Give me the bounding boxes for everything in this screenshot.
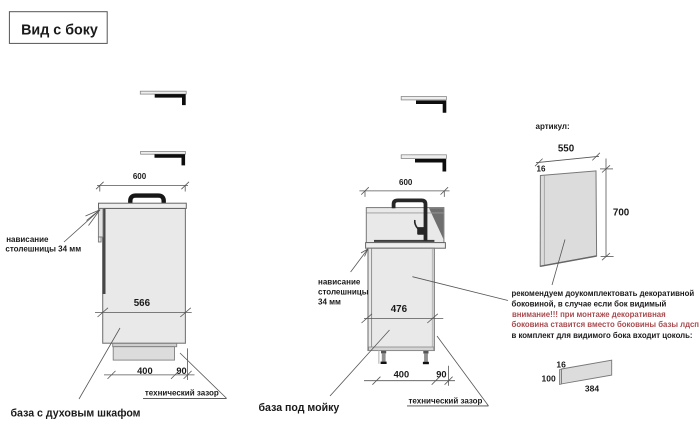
svg-text:база с духовым шкафом: база с духовым шкафом: [11, 408, 141, 420]
svg-text:технический зазор: технический зазор: [145, 389, 219, 398]
svg-text:476: 476: [391, 304, 408, 315]
svg-text:600: 600: [399, 178, 413, 187]
svg-text:рекомендуем доукомплектовать д: рекомендуем доукомплектовать декоративно…: [512, 289, 695, 298]
svg-text:боковина ставится вместо боков: боковина ставится вместо боковины базы л…: [512, 320, 700, 329]
svg-text:100: 100: [542, 373, 556, 383]
svg-text:боковиной, в случае если бок в: боковиной, в случае если бок видимый: [512, 299, 667, 308]
svg-text:384: 384: [585, 384, 599, 394]
svg-text:технический зазор: технический зазор: [409, 397, 483, 406]
svg-text:550: 550: [558, 144, 575, 155]
svg-text:нависание: нависание: [318, 278, 361, 287]
svg-text:400: 400: [394, 370, 410, 380]
svg-text:внимание!!! при монтаже декора: внимание!!! при монтаже декоративная: [512, 310, 666, 319]
svg-text:Вид с боку: Вид с боку: [21, 22, 98, 38]
svg-text:400: 400: [137, 366, 153, 376]
svg-text:700: 700: [613, 207, 630, 218]
svg-text:16: 16: [537, 165, 546, 174]
svg-text:566: 566: [134, 298, 151, 309]
svg-text:столешницы 34 мм: столешницы 34 мм: [5, 245, 81, 254]
svg-text:90: 90: [176, 366, 186, 376]
svg-text:нависание: нависание: [6, 235, 49, 244]
svg-text:600: 600: [133, 172, 147, 181]
svg-text:столешницы: столешницы: [318, 288, 369, 297]
svg-text:база под мойку: база под мойку: [259, 402, 340, 414]
svg-text:артикул:: артикул:: [536, 122, 570, 131]
svg-text:34 мм: 34 мм: [318, 298, 341, 307]
svg-text:16: 16: [556, 360, 566, 370]
svg-text:90: 90: [436, 370, 446, 380]
svg-text:в комплект для видимого бока в: в комплект для видимого бока входит цоко…: [512, 331, 693, 340]
